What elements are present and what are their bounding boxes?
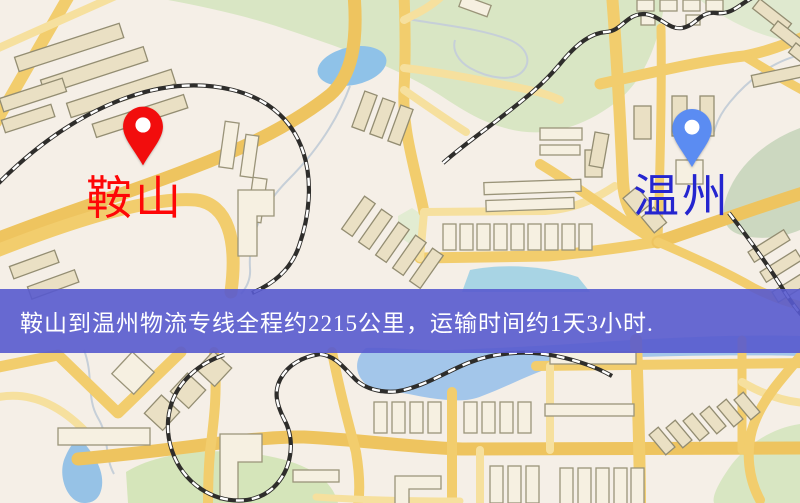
origin-location-pin-icon bbox=[122, 104, 164, 168]
map-canvas bbox=[0, 0, 800, 503]
origin-city-label: 鞍山 bbox=[86, 176, 184, 222]
origin-pin-hole bbox=[135, 117, 150, 132]
route-info-banner: 鞍山到温州物流专线全程约2215公里，运输时间约1天3小时. bbox=[0, 289, 800, 353]
map-screenshot: 鞍山 温州 鞍山到温州物流专线全程约2215公里，运输时间约1天3小时. bbox=[0, 0, 800, 503]
destination-pin-body bbox=[672, 109, 711, 167]
route-info-text: 鞍山到温州物流专线全程约2215公里，运输时间约1天3小时. bbox=[20, 304, 654, 338]
destination-city-label: 温州 bbox=[633, 174, 731, 220]
origin-pin-body bbox=[123, 107, 163, 166]
destination-location-pin-icon bbox=[671, 108, 713, 168]
destination-pin-hole bbox=[685, 120, 700, 135]
